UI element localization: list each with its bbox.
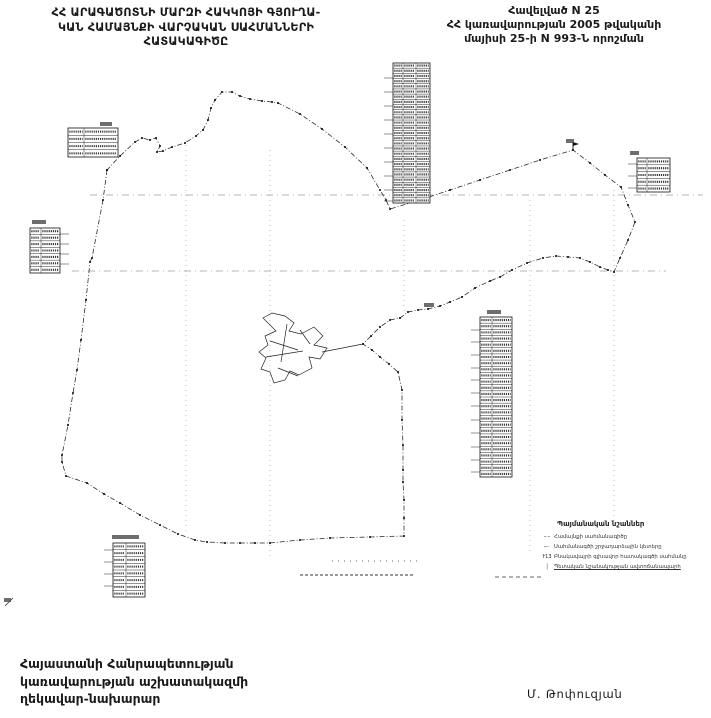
boundary-turn-point xyxy=(427,308,429,310)
illegible-label xyxy=(4,598,11,602)
boundary-turn-point xyxy=(210,107,212,109)
illegible-label xyxy=(566,139,574,143)
boundary-turn-point xyxy=(61,454,63,456)
boundary-turn-point xyxy=(449,301,451,303)
boundary-turn-point xyxy=(194,539,196,541)
boundary-turn-point xyxy=(370,335,372,337)
boundary-turn-point xyxy=(589,261,591,263)
boundary-turn-point xyxy=(239,95,241,97)
illegible-label xyxy=(630,151,639,155)
boundary-turn-point xyxy=(567,256,569,258)
boundary-turn-point xyxy=(85,299,87,301)
illegible-label xyxy=(100,122,112,126)
boundary-turn-point xyxy=(134,141,136,143)
boundary-turn-point xyxy=(379,326,381,328)
legend-item-road: │ Պետական նշանակության ավտոճանապարհ xyxy=(540,562,710,572)
boundary-turn-point xyxy=(299,113,301,115)
boundary-turn-point xyxy=(499,276,501,278)
boundary-turn-point xyxy=(439,305,441,307)
illegible-label xyxy=(487,310,501,314)
legend-item-turn-points: ⌐· Սահմանագծի շրջադարձային կետերը xyxy=(540,542,710,552)
boundary-turn-point xyxy=(119,502,121,504)
boundary-turn-point xyxy=(184,142,186,144)
boundary-turn-point xyxy=(555,255,557,257)
boundary-turn-point xyxy=(613,271,615,273)
legend-label: Պետական նշանակության ավտոճանապարհ xyxy=(554,564,681,570)
boundary-turn-point xyxy=(401,389,403,391)
turn-point-sample-icon: ⌐· xyxy=(540,544,554,550)
legend-label: Համայնքի սահմանագիծը xyxy=(554,534,627,540)
boundary-turn-point xyxy=(474,287,476,289)
boundary-turn-point xyxy=(620,186,622,188)
boundary-turn-point xyxy=(402,444,404,446)
boundary-turn-point xyxy=(401,419,403,421)
boundary-turn-point xyxy=(402,481,404,483)
boundary-turn-point xyxy=(277,102,279,104)
boundary-turn-point xyxy=(619,257,621,259)
boundary-turn-point xyxy=(271,101,273,103)
boundary-turn-point xyxy=(579,257,581,259)
boundary-turn-point xyxy=(599,266,601,268)
boundary-turn-point xyxy=(627,204,629,206)
boundary-turn-point xyxy=(231,91,233,93)
boundary-turn-point xyxy=(177,533,179,535)
boundary-turn-point xyxy=(221,91,223,93)
document-page: ՀՀ ԱՐԱԳԱԾՈՏՆԻ ՄԱՐԶԻ ՀԱԿԿՈՅԻ ԳՅՈՒՂԱ- ԿԱՆ … xyxy=(0,0,711,718)
boundary-turn-point xyxy=(366,167,368,169)
boundary-turn-point xyxy=(329,537,331,539)
boundary-turn-point xyxy=(89,261,91,263)
boundary-turn-point xyxy=(261,100,263,102)
boundary-turn-point xyxy=(103,493,105,495)
boundary-turn-point xyxy=(479,179,481,181)
boundary-turn-point xyxy=(106,169,108,171)
boundary-turn-point xyxy=(604,174,606,176)
boundary-turn-point xyxy=(385,199,387,201)
boundary-turn-point xyxy=(171,146,173,148)
boundary-turn-point xyxy=(155,137,157,139)
boundary-turn-point xyxy=(159,145,161,147)
boundary-turn-point xyxy=(214,99,216,101)
boundary-turn-point xyxy=(162,150,164,152)
boundary-turn-point xyxy=(76,369,78,371)
legend-item-settlement-plan: Ւ13 Բնակավայրի գլխավոր հատակագծի սահմանը xyxy=(540,552,710,562)
community-boundary-line xyxy=(62,92,635,543)
boundary-turn-point xyxy=(379,356,381,358)
boundary-turn-point xyxy=(407,311,409,313)
boundary-turn-point xyxy=(369,536,371,538)
boundary-turn-point xyxy=(321,128,323,130)
signatory-line-1: Հայաստանի Հանրապետության xyxy=(20,655,248,673)
boundary-turn-point xyxy=(627,239,629,241)
boundary-turn-point xyxy=(403,535,405,537)
boundary-turn-point xyxy=(526,262,528,264)
boundary-turn-point xyxy=(141,137,143,139)
boundary-turn-point xyxy=(149,139,151,141)
boundary-turn-point xyxy=(403,517,405,519)
boundary-turn-point xyxy=(202,129,204,131)
boundary-turn-point xyxy=(449,189,451,191)
boundary-turn-point xyxy=(65,475,67,477)
boundary-turn-point xyxy=(67,424,69,426)
boundary-turn-point xyxy=(371,349,373,351)
boundary-turn-point xyxy=(344,146,346,148)
boundary-turn-point xyxy=(461,296,463,298)
boundary-turn-point xyxy=(539,159,541,161)
boundary-turn-point xyxy=(634,221,636,223)
boundary-turn-point xyxy=(72,392,74,394)
legend-item-boundary: –·– Համայնքի սահմանագիծը xyxy=(540,532,710,542)
boundary-turn-point xyxy=(239,542,241,544)
boundary-turn-point xyxy=(206,541,208,543)
boundary-turn-point xyxy=(589,162,591,164)
illegible-label xyxy=(112,535,139,539)
boundary-turn-point xyxy=(388,363,390,365)
signatory-name: Մ. Թոփուզյան xyxy=(527,687,623,701)
illegible-label xyxy=(424,303,434,307)
boundary-turn-point xyxy=(224,542,226,544)
boundary-turn-point xyxy=(607,269,609,271)
legend-label: Բնակավայրի գլխավոր հատակագծի սահմանը xyxy=(554,554,687,560)
boundary-turn-point xyxy=(195,135,197,137)
boundary-turn-point xyxy=(249,98,251,100)
boundary-turn-point xyxy=(402,469,404,471)
boundary-turn-point xyxy=(156,151,158,153)
boundary-turn-point xyxy=(102,199,104,201)
boundary-turn-point xyxy=(489,280,491,282)
boundary-turn-point xyxy=(91,257,93,259)
illegible-label xyxy=(32,220,46,224)
boundary-turn-point xyxy=(399,317,401,319)
boundary-turn-point xyxy=(299,539,301,541)
boundary-turn-point xyxy=(139,514,141,516)
road-sample-icon: │ xyxy=(540,564,554,570)
boundary-turn-point xyxy=(417,309,419,311)
boundary-turn-point xyxy=(80,339,82,341)
boundary-turn-point xyxy=(86,482,88,484)
legend-title: Պայմանական նշաններ xyxy=(557,520,710,528)
boundary-turn-point xyxy=(119,155,121,157)
numbered-point-sample-icon: Ւ13 xyxy=(540,554,554,560)
boundary-turn-point xyxy=(397,371,399,373)
boundary-line-sample-icon: –·– xyxy=(540,534,554,540)
boundary-turn-point xyxy=(403,499,405,501)
boundary-turn-point xyxy=(511,269,513,271)
legend-label: Սահմանագծի շրջադարձային կետերը xyxy=(554,544,662,550)
administrative-boundary-map xyxy=(0,0,711,718)
boundary-turn-point xyxy=(389,319,391,321)
signatory-line-2: կառավարության աշխատակազմի xyxy=(20,673,248,691)
signatory-title: Հայաստանի Հանրապետության կառավարության ա… xyxy=(20,655,248,708)
boundary-turn-point xyxy=(61,461,63,463)
boundary-turn-point xyxy=(389,208,391,210)
boundary-turn-point xyxy=(542,257,544,259)
boundary-turn-point xyxy=(509,169,511,171)
settlement-outline xyxy=(259,313,363,383)
signatory-line-3: ղեկավար-նախարար xyxy=(20,690,248,708)
boundary-turn-point xyxy=(207,119,209,121)
boundary-turn-point xyxy=(379,189,381,191)
boundary-turn-point xyxy=(269,542,271,544)
boundary-turn-point xyxy=(254,542,256,544)
boundary-turn-point xyxy=(159,524,161,526)
map-legend: Պայմանական նշաններ –·– Համայնքի սահմանագ… xyxy=(540,520,710,572)
